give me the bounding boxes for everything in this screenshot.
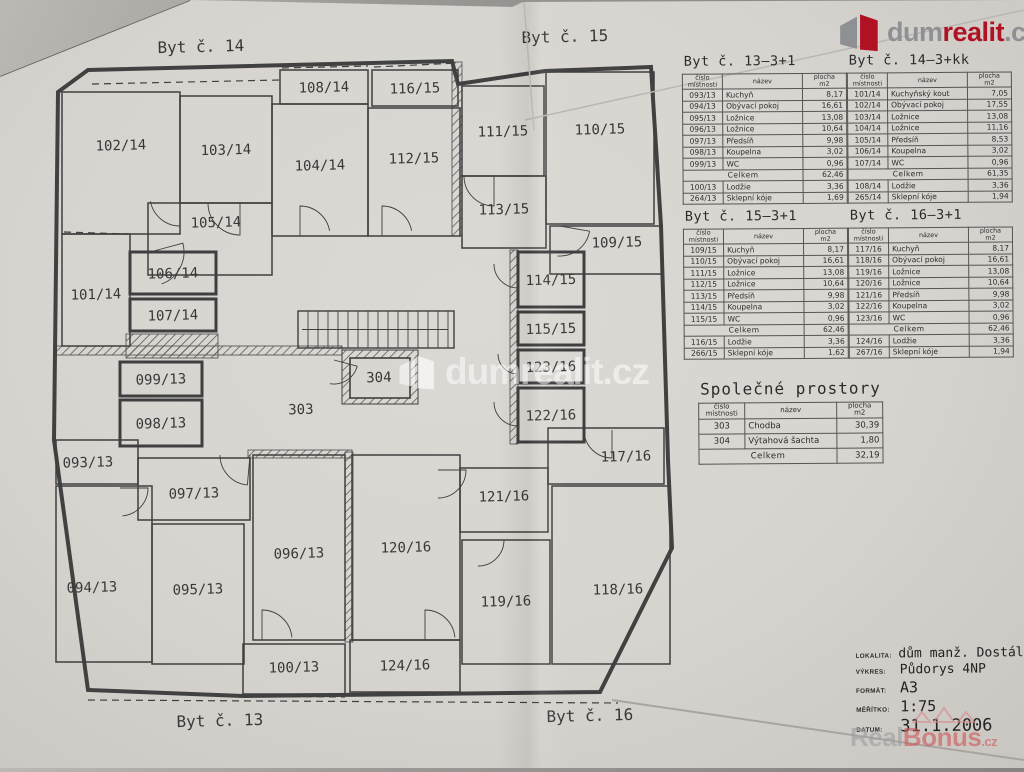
dumrealit-house-icon bbox=[834, 8, 880, 56]
room-name-cell: Předsíň bbox=[724, 289, 804, 301]
area-value-cell: 10,64 bbox=[969, 277, 1013, 289]
room-name-cell: WC bbox=[888, 156, 968, 168]
photo-of-floorplan-sheet: { "logo": { "text_pre": "dum", "text_acc… bbox=[0, 0, 1024, 768]
area-table: Byt č. 15–3+1číslo místnostinázevplocha … bbox=[683, 208, 849, 360]
room-name-cell: Ložnice bbox=[724, 278, 804, 290]
area-value-cell: 0,96 bbox=[804, 312, 848, 324]
room-number-cell: 094/13 bbox=[683, 101, 723, 113]
room-name-cell: Předsíň bbox=[889, 288, 969, 300]
area-value-cell: 13,08 bbox=[969, 265, 1013, 277]
room-number-cell: 110/15 bbox=[684, 256, 724, 268]
area-value-cell: 17,55 bbox=[968, 99, 1012, 111]
room-name-cell: Sklepní kóje bbox=[889, 346, 969, 358]
area-value-cell: 3,02 bbox=[803, 146, 847, 158]
table-header-row: číslo místnostinázevplocha m2 bbox=[682, 73, 846, 89]
area-value-cell: 10,64 bbox=[803, 123, 847, 135]
header-cell: číslo místnosti bbox=[847, 73, 887, 88]
room-name-cell: WC bbox=[723, 157, 803, 169]
area-value-cell: 9,98 bbox=[804, 289, 848, 301]
header-cell: číslo místnosti bbox=[682, 74, 722, 89]
area-value-cell: 16,61 bbox=[803, 100, 847, 112]
extra-row: 266/15Sklepní kóje1,62 bbox=[684, 347, 848, 360]
title-block-value: dům manž. Dostál bbox=[898, 645, 1023, 661]
dumrealit-wordmark: dumrealit.cz bbox=[887, 17, 1024, 48]
room-number-cell: 119/16 bbox=[849, 266, 889, 278]
room-number-cell: 107/14 bbox=[848, 157, 888, 169]
room-name-cell: Kuchyň bbox=[724, 243, 804, 255]
room-name-cell: Lodžie bbox=[888, 179, 968, 191]
extra-row: 264/13Sklepní kóje1,69 bbox=[683, 192, 847, 205]
dumrealit-logo: dumrealit.cz bbox=[834, 8, 1024, 56]
area-table-grid: číslo místnostinázevplocha m2101/14Kuchy… bbox=[847, 72, 1013, 204]
header-cell: název bbox=[888, 227, 968, 243]
table-header-row: číslo místnostinázevplocha m2 bbox=[699, 402, 883, 419]
room-number-cell: 106/14 bbox=[848, 145, 888, 157]
room-number-cell: 303 bbox=[699, 419, 745, 434]
area-table-grid: číslo místnostinázevplocha m2303Chodba30… bbox=[698, 401, 883, 464]
room-number-cell: 118/16 bbox=[849, 254, 889, 266]
area-value-cell: 3,36 bbox=[803, 180, 847, 192]
room-name-cell: Obývací pokoj bbox=[888, 99, 968, 111]
total-value-cell: 62,46 bbox=[803, 169, 847, 181]
room-number-cell: 100/13 bbox=[683, 181, 723, 193]
logo-text-dum: dum bbox=[887, 17, 943, 47]
room-name-cell: Koupelna bbox=[888, 145, 968, 157]
room-number-cell: 117/16 bbox=[849, 243, 889, 255]
total-value-cell: 32,19 bbox=[837, 448, 883, 463]
room-number-cell: 104/14 bbox=[848, 122, 888, 134]
extra-row: 267/16Sklepní kóje1,94 bbox=[849, 345, 1013, 358]
area-value-cell: 16,61 bbox=[804, 255, 848, 267]
total-label-cell: Celkem bbox=[684, 324, 804, 336]
area-table-grid: číslo místnostinázevplocha m2093/13Kuchy… bbox=[682, 73, 848, 205]
room-name-cell: Kuchyňský kout bbox=[887, 87, 967, 99]
title-block-value: A3 bbox=[900, 678, 918, 696]
room-number-cell: 124/16 bbox=[849, 335, 889, 347]
total-value-cell: 61,35 bbox=[968, 168, 1012, 180]
room-number-cell: 095/13 bbox=[683, 112, 723, 124]
room-number-cell: 097/13 bbox=[683, 135, 723, 147]
area-value-cell: 9,98 bbox=[969, 288, 1013, 300]
room-number-cell: 103/14 bbox=[848, 111, 888, 123]
total-label-cell: Celkem bbox=[683, 169, 803, 181]
area-value-cell: 8,17 bbox=[802, 88, 846, 100]
logo-text-cz: .cz bbox=[1004, 17, 1024, 47]
title-block-value: Půdorys 4NP bbox=[900, 662, 986, 678]
area-value-cell: 0,96 bbox=[968, 156, 1012, 168]
room-name-cell: Obývací pokoj bbox=[724, 255, 804, 267]
header-cell: název bbox=[745, 402, 837, 418]
header-cell: plocha m2 bbox=[967, 72, 1011, 87]
room-name-cell: Ložnice bbox=[888, 122, 968, 134]
area-table-grid: číslo místnostinázevplocha m2109/15Kuchy… bbox=[683, 228, 849, 360]
table-title: Byt č. 16–3+1 bbox=[850, 206, 1013, 223]
room-number-cell: 264/13 bbox=[683, 193, 723, 205]
realbonus-text-real: Real bbox=[850, 722, 903, 752]
table-title: Společné prostory bbox=[700, 378, 883, 398]
room-name-cell: Předsíň bbox=[723, 134, 803, 146]
room-name-cell: Předsíň bbox=[888, 133, 968, 145]
area-value-cell: 3,02 bbox=[969, 300, 1013, 312]
total-value-cell: 62,46 bbox=[804, 324, 848, 336]
header-cell: název bbox=[723, 228, 803, 244]
room-number-cell: 121/16 bbox=[849, 289, 889, 301]
title-block-label: FORMÁT: bbox=[856, 687, 900, 694]
area-value-cell: 1,80 bbox=[837, 433, 883, 448]
room-number-cell: 120/16 bbox=[849, 277, 889, 289]
header-cell: název bbox=[887, 72, 967, 88]
room-name-cell: Kuchyň bbox=[889, 242, 969, 254]
logo-text-realit: realit bbox=[943, 17, 1005, 47]
area-table: Byt č. 14–3+kkčíslo místnostinázevplocha… bbox=[847, 52, 1013, 204]
room-number-cell: 102/14 bbox=[848, 99, 888, 111]
paper-sheet: 102/14103/14104/14108/14116/15112/15111/… bbox=[0, 0, 1024, 768]
area-table: Společné prostoryčíslo místnostinázevplo… bbox=[698, 378, 884, 464]
room-name-cell: WC bbox=[724, 312, 804, 324]
room-name-cell: Sklepní kóje bbox=[888, 191, 968, 203]
total-value-cell: 62,46 bbox=[969, 323, 1013, 335]
room-name-cell: Ložnice bbox=[723, 123, 803, 135]
room-name-cell: Ložnice bbox=[889, 265, 969, 277]
room-name-cell: Koupelna bbox=[889, 300, 969, 312]
area-value-cell: 1,94 bbox=[969, 345, 1013, 357]
room-number-cell: 114/15 bbox=[684, 302, 724, 314]
room-number-cell: 267/16 bbox=[849, 346, 889, 358]
area-value-cell: 8,17 bbox=[969, 242, 1013, 254]
area-value-cell: 0,96 bbox=[969, 311, 1013, 323]
room-name-cell: Koupelna bbox=[724, 301, 804, 313]
room-name-cell: Lodžie bbox=[724, 335, 804, 347]
room-name-cell: Koupelna bbox=[723, 146, 803, 158]
area-table: Byt č. 13–3+1číslo místnostinázevplocha … bbox=[682, 53, 848, 205]
room-number-cell: 099/13 bbox=[683, 158, 723, 170]
room-number-cell: 093/13 bbox=[682, 89, 722, 101]
area-value-cell: 1,94 bbox=[968, 191, 1012, 203]
table-row: 303Chodba30,39 bbox=[699, 418, 883, 434]
realbonus-text-bonus: Bonus bbox=[903, 722, 981, 752]
title-block-row: FORMÁT:A3 bbox=[856, 677, 1024, 697]
header-cell: plocha m2 bbox=[968, 227, 1012, 242]
header-cell: číslo místnosti bbox=[848, 228, 888, 243]
room-number-cell: 101/14 bbox=[847, 88, 887, 100]
roof-shape bbox=[934, 708, 954, 722]
title-block-row: LOKALITA:dům manž. Dostál bbox=[856, 645, 1024, 662]
room-name-cell: Lodžie bbox=[889, 334, 969, 346]
room-number-cell: 111/15 bbox=[684, 267, 724, 279]
room-name-cell: Chodba bbox=[745, 418, 837, 434]
table-title: Byt č. 13–3+1 bbox=[684, 53, 847, 70]
realbonus-watermark: RealBonus.cz bbox=[850, 704, 1024, 750]
room-number-cell: 116/15 bbox=[684, 336, 724, 348]
room-name-cell: Ložnice bbox=[723, 111, 803, 123]
room-number-cell: 266/15 bbox=[684, 348, 724, 360]
header-cell: plocha m2 bbox=[803, 228, 847, 243]
header-cell: číslo místnosti bbox=[683, 229, 723, 244]
total-label-cell: Celkem bbox=[849, 323, 969, 335]
area-value-cell: 8,17 bbox=[804, 243, 848, 255]
area-value-cell: 3,36 bbox=[969, 334, 1013, 346]
area-value-cell: 1,69 bbox=[803, 192, 847, 204]
room-number-cell: 109/15 bbox=[684, 244, 724, 256]
area-value-cell: 0,96 bbox=[803, 157, 847, 169]
area-value-cell: 3,02 bbox=[968, 145, 1012, 157]
room-name-cell: WC bbox=[889, 311, 969, 323]
title-block-label: VÝKRES: bbox=[856, 668, 900, 675]
area-table-grid: číslo místnostinázevplocha m2117/16Kuchy… bbox=[848, 226, 1014, 358]
title-block-label: LOKALITA: bbox=[856, 652, 899, 659]
header-cell: plocha m2 bbox=[837, 402, 883, 418]
table-row: 304Výtahová šachta1,80 bbox=[699, 433, 883, 449]
room-number-cell: 096/13 bbox=[683, 124, 723, 136]
area-value-cell: 13,08 bbox=[803, 111, 847, 123]
header-cell: název bbox=[722, 73, 802, 89]
area-value-cell: 13,08 bbox=[804, 266, 848, 278]
realbonus-roofline-icon bbox=[912, 704, 982, 724]
total-label-cell: Celkem bbox=[699, 448, 837, 464]
area-value-cell: 7,05 bbox=[967, 87, 1011, 99]
room-name-cell: Lodžie bbox=[723, 180, 803, 192]
table-title: Byt č. 15–3+1 bbox=[685, 208, 848, 225]
table-header-row: číslo místnostinázevplocha m2 bbox=[848, 227, 1012, 243]
room-name-cell: Ložnice bbox=[724, 266, 804, 278]
room-number-cell: 122/16 bbox=[849, 300, 889, 312]
header-cell: číslo místnosti bbox=[699, 403, 745, 419]
total-label-cell: Celkem bbox=[848, 168, 968, 180]
roof-shape bbox=[958, 712, 974, 722]
table-header-row: číslo místnostinázevplocha m2 bbox=[683, 228, 847, 244]
room-name-cell: Obývací pokoj bbox=[723, 100, 803, 112]
room-number-cell: 115/15 bbox=[684, 313, 724, 325]
area-value-cell: 3,36 bbox=[804, 335, 848, 347]
title-block-row: VÝKRES:Půdorys 4NP bbox=[856, 661, 1024, 678]
room-name-cell: Ložnice bbox=[888, 110, 968, 122]
total-row: Celkem32,19 bbox=[699, 448, 883, 464]
room-number-cell: 113/15 bbox=[684, 290, 724, 302]
logo-icon-gray-face bbox=[840, 17, 857, 49]
room-number-cell: 304 bbox=[699, 434, 745, 449]
area-value-cell: 9,98 bbox=[803, 134, 847, 146]
area-table: Byt č. 16–3+1číslo místnostinázevplocha … bbox=[848, 206, 1014, 358]
room-number-cell: 098/13 bbox=[683, 147, 723, 159]
area-value-cell: 13,08 bbox=[968, 110, 1012, 122]
room-number-cell: 108/14 bbox=[848, 180, 888, 192]
area-value-cell: 3,02 bbox=[804, 301, 848, 313]
roof-shape bbox=[914, 712, 930, 722]
area-value-cell: 8,53 bbox=[968, 133, 1012, 145]
area-value-cell: 30,39 bbox=[837, 418, 883, 433]
area-value-cell: 11,16 bbox=[968, 122, 1012, 134]
realbonus-text-cz: .cz bbox=[981, 734, 997, 749]
room-name-cell: Výtahová šachta bbox=[745, 433, 837, 449]
room-name-cell: Sklepní kóje bbox=[724, 347, 804, 359]
table-header-row: číslo místnostinázevplocha m2 bbox=[847, 72, 1011, 88]
realbonus-wordmark: RealBonus.cz bbox=[850, 724, 1024, 750]
extra-row: 265/14Sklepní kóje1,94 bbox=[848, 191, 1012, 204]
room-name-cell: Ložnice bbox=[889, 277, 969, 289]
room-number-cell: 112/15 bbox=[684, 279, 724, 291]
area-value-cell: 16,61 bbox=[969, 254, 1013, 266]
room-name-cell: Obývací pokoj bbox=[889, 254, 969, 266]
header-cell: plocha m2 bbox=[802, 73, 846, 88]
room-number-cell: 105/14 bbox=[848, 134, 888, 146]
area-value-cell: 10,64 bbox=[804, 278, 848, 290]
room-name-cell: Sklepní kóje bbox=[723, 192, 803, 204]
area-value-cell: 1,62 bbox=[804, 347, 848, 359]
logo-icon-red-face bbox=[860, 14, 878, 51]
room-number-cell: 265/14 bbox=[848, 191, 888, 203]
room-number-cell: 123/16 bbox=[849, 312, 889, 324]
room-name-cell: Kuchyň bbox=[722, 88, 802, 100]
area-value-cell: 3,36 bbox=[968, 179, 1012, 191]
